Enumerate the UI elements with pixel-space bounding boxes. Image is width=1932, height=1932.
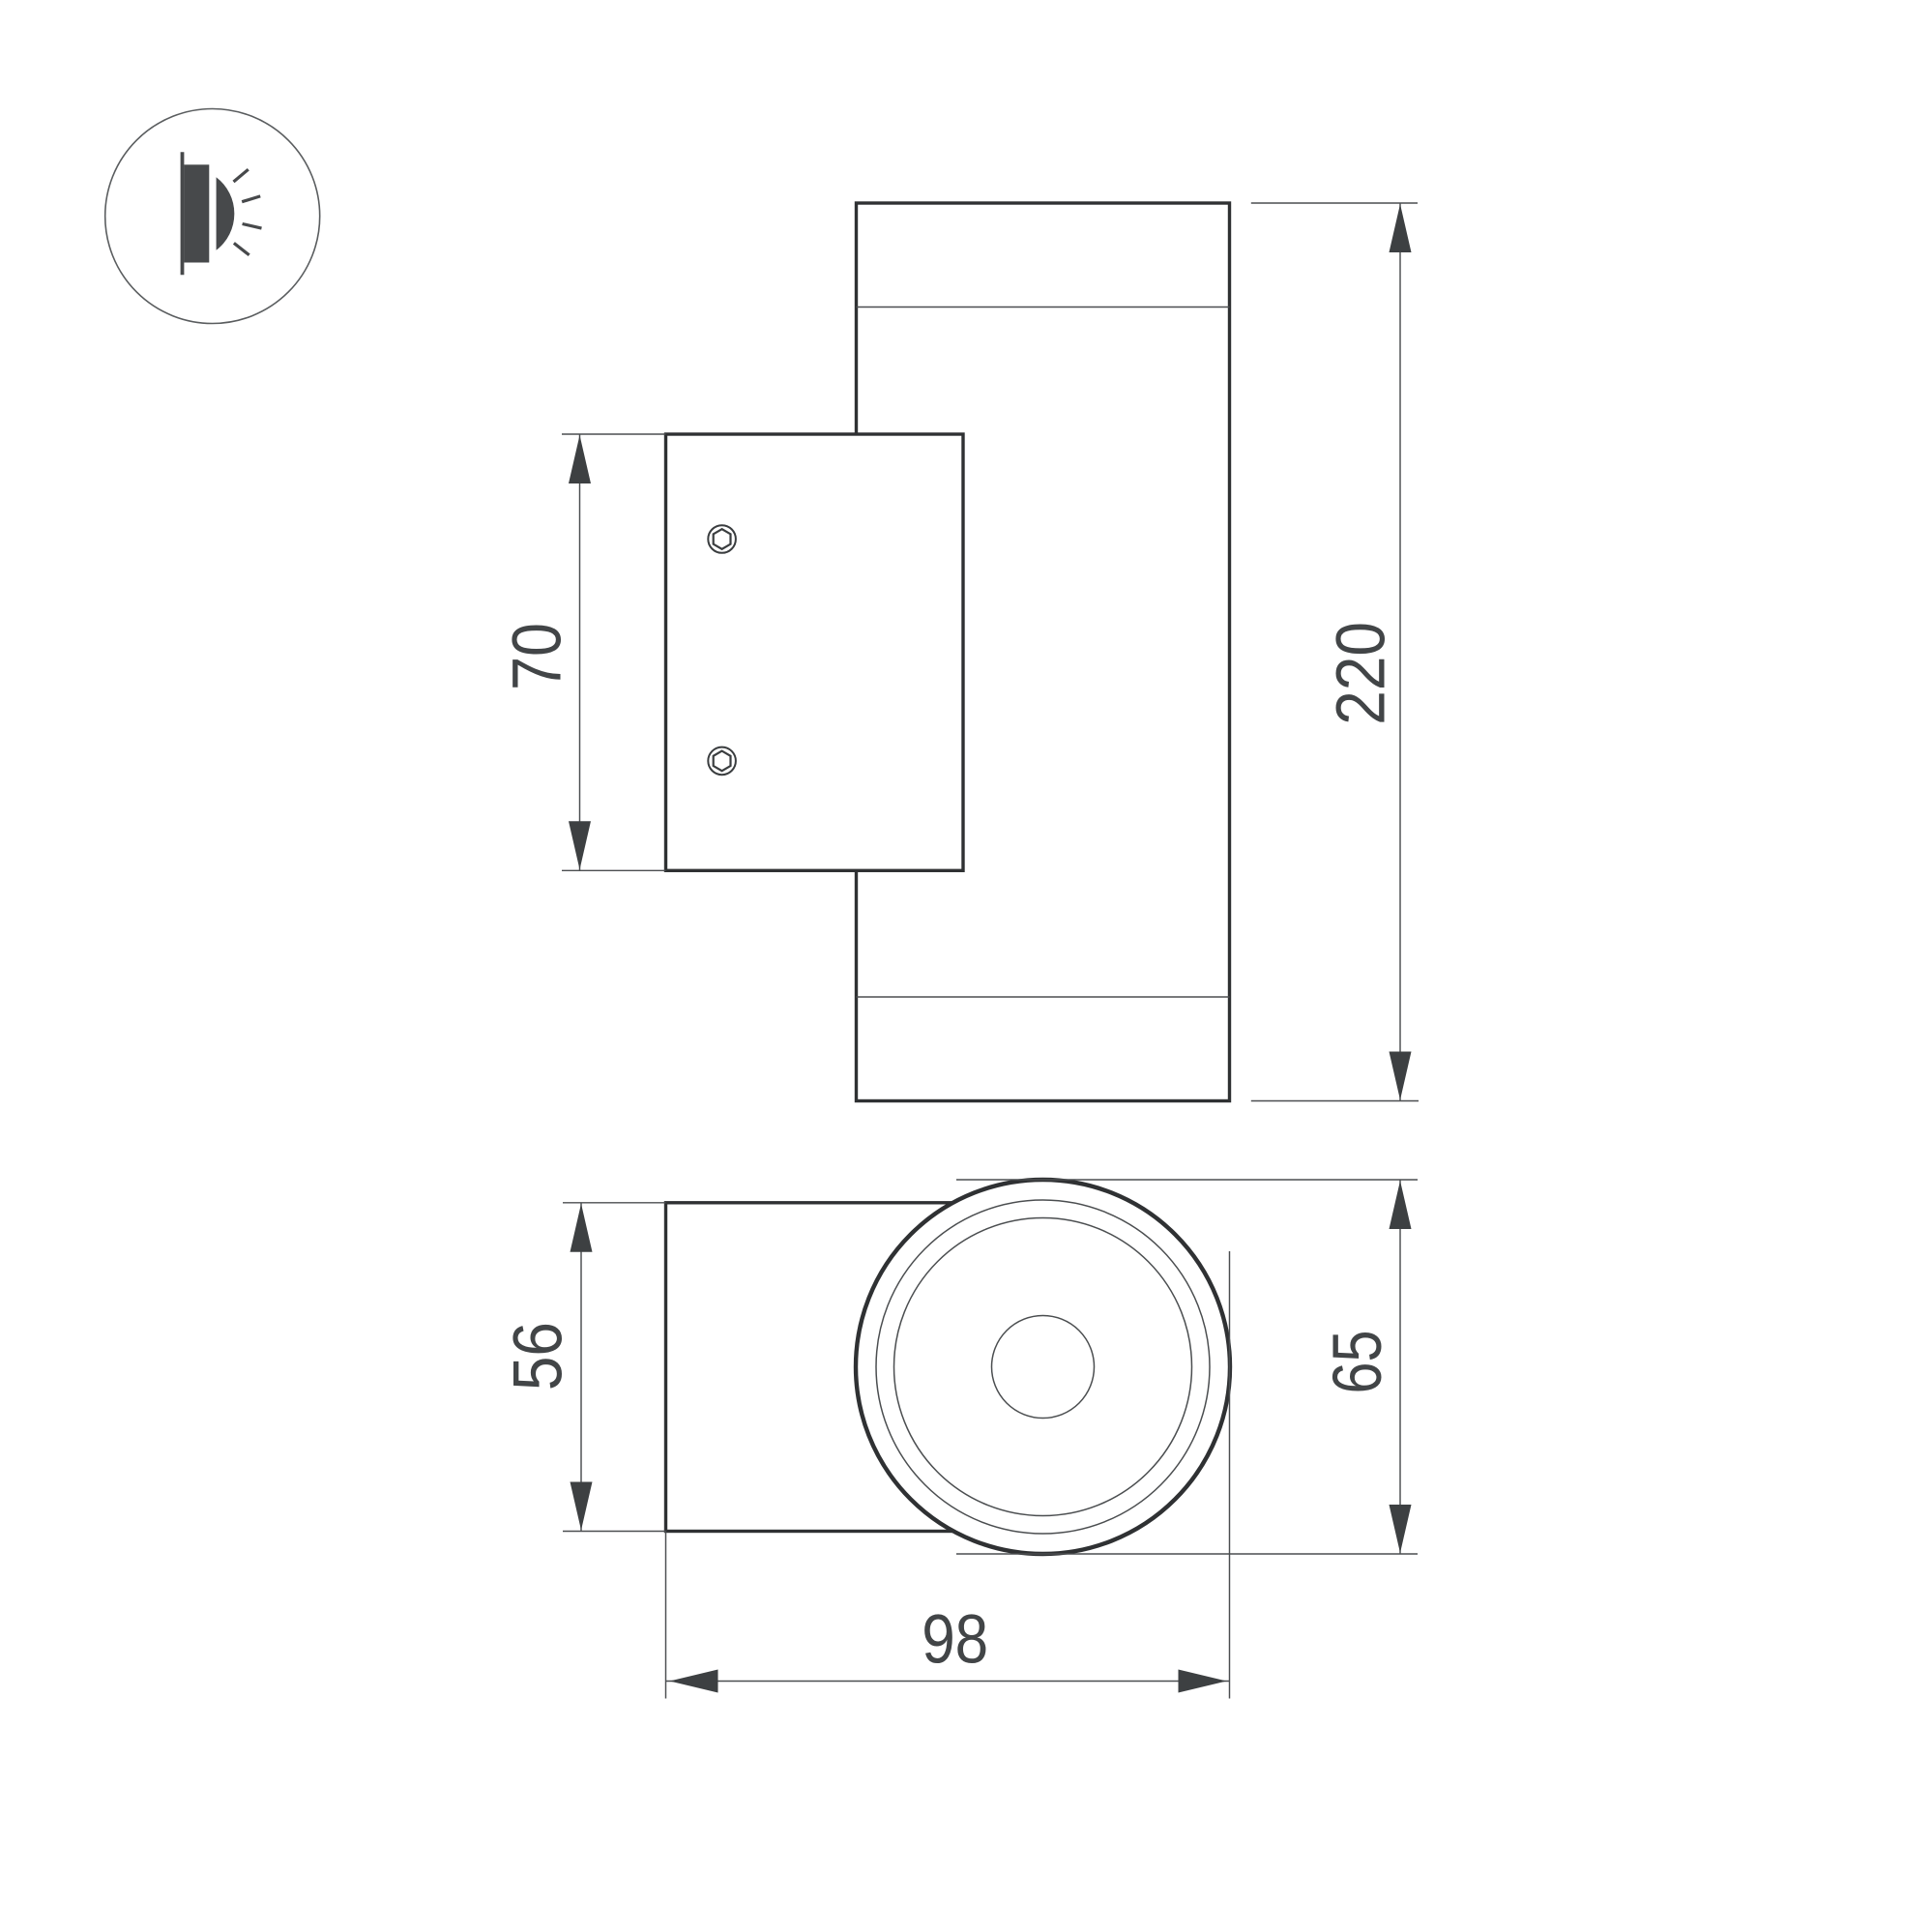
svg-text:70: 70 (500, 623, 576, 690)
svg-text:65: 65 (1320, 1331, 1396, 1394)
svg-text:220: 220 (1324, 622, 1400, 725)
svg-text:98: 98 (922, 1601, 988, 1678)
svg-text:56: 56 (501, 1322, 577, 1390)
